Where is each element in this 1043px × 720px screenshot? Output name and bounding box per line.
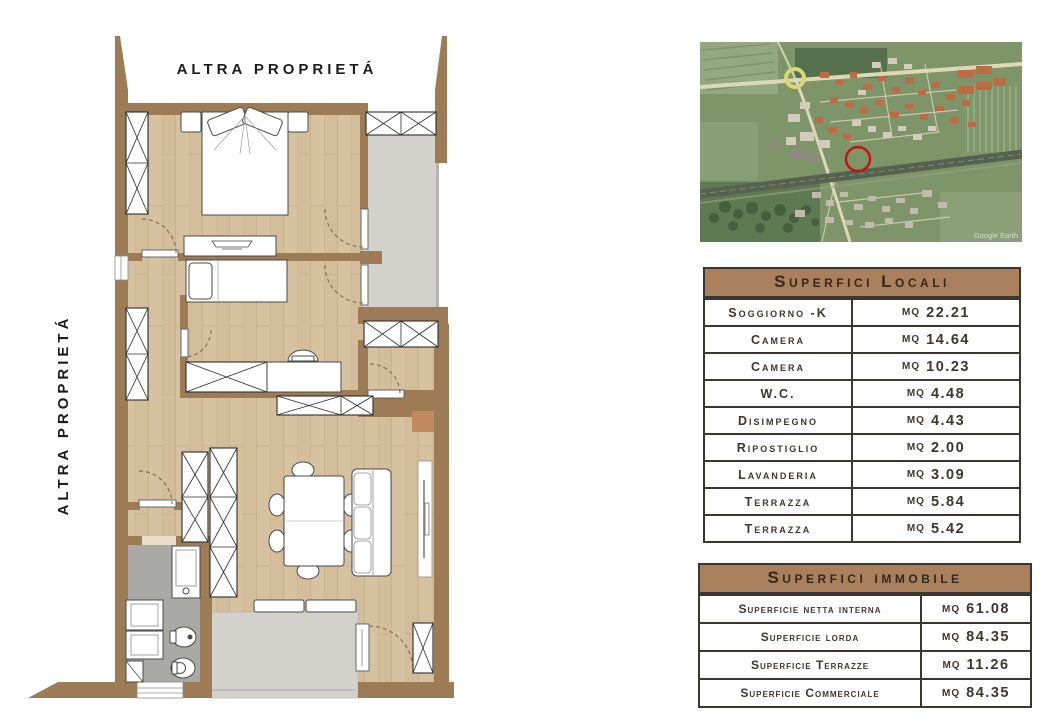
table-superfici-locali: Superfici Locali Soggiorno -K MQ22.21 Ca… — [703, 267, 1021, 543]
table-row: Superficie Commerciale MQ84.35 — [700, 678, 1030, 706]
surface-area: MQ84.35 — [922, 680, 1030, 706]
terrace-floor-bottom — [210, 612, 358, 698]
table-row: Superficie netta interna MQ61.08 — [700, 594, 1030, 622]
surface-label: Superficie Terrazze — [700, 652, 922, 678]
tv-panel — [418, 461, 432, 577]
surface-area: MQ61.08 — [922, 596, 1030, 622]
table-row: Soggiorno -K MQ22.21 — [705, 298, 1019, 325]
room-area: MQ4.48 — [853, 381, 1019, 406]
table-title: Superfici Locali — [705, 269, 1019, 298]
room-label: Terrazza — [705, 489, 853, 514]
room-label: Disimpegno — [705, 408, 853, 433]
room-label: Terrazza — [705, 516, 853, 541]
table-row: W.C. MQ4.48 — [705, 379, 1019, 406]
table-row: Terrazza MQ5.42 — [705, 514, 1019, 541]
single-bed — [186, 260, 287, 302]
top-boundary-label: ALTRA PROPRIETÁ — [177, 61, 378, 78]
room-area: MQ4.43 — [853, 408, 1019, 433]
table-row: Camera MQ10.23 — [705, 352, 1019, 379]
room-area: MQ22.21 — [853, 300, 1019, 325]
table-row: Disimpegno MQ4.43 — [705, 406, 1019, 433]
page: ALTRA PROPRIETÁ ALTRA PROPRIETÁ — [0, 0, 1043, 720]
surface-area: MQ84.35 — [922, 624, 1030, 650]
room-label: Soggiorno -K — [705, 300, 853, 325]
sofa — [352, 469, 391, 576]
room-label: Ripostiglio — [705, 435, 853, 460]
dresser-tv — [184, 236, 276, 256]
room-label: W.C. — [705, 381, 853, 406]
room-area: MQ14.64 — [853, 327, 1019, 352]
room-label: Lavanderia — [705, 462, 853, 487]
table-superfici-immobile: Superfici immobile Superficie netta inte… — [698, 563, 1032, 708]
surface-area: MQ11.26 — [922, 652, 1030, 678]
satellite-map: Google Earth — [700, 42, 1022, 242]
floor-plan: ALTRA PROPRIETÁ ALTRA PROPRIETÁ — [0, 0, 480, 720]
table-row: Lavanderia MQ3.09 — [705, 460, 1019, 487]
table-row: Camera MQ14.64 — [705, 325, 1019, 352]
terrace-floor-top — [366, 112, 438, 308]
surface-label: Superficie lorda — [700, 624, 922, 650]
table-row: Terrazza MQ5.84 — [705, 487, 1019, 514]
left-boundary-label: ALTRA PROPRIETÁ — [55, 315, 72, 516]
room-area: MQ10.23 — [853, 354, 1019, 379]
room-area: MQ5.84 — [853, 489, 1019, 514]
room-area: MQ2.00 — [853, 435, 1019, 460]
table-title: Superfici immobile — [700, 565, 1030, 594]
room-area: MQ5.42 — [853, 516, 1019, 541]
surface-label: Superficie netta interna — [700, 596, 922, 622]
table-row: Superficie Terrazze MQ11.26 — [700, 650, 1030, 678]
room-label: Camera — [705, 354, 853, 379]
map-watermark: Google Earth — [974, 231, 1018, 240]
surface-label: Superficie Commerciale — [700, 680, 922, 706]
room-area: MQ3.09 — [853, 462, 1019, 487]
table-row: Ripostiglio MQ2.00 — [705, 433, 1019, 460]
table-row: Superficie lorda MQ84.35 — [700, 622, 1030, 650]
room-label: Camera — [705, 327, 853, 352]
